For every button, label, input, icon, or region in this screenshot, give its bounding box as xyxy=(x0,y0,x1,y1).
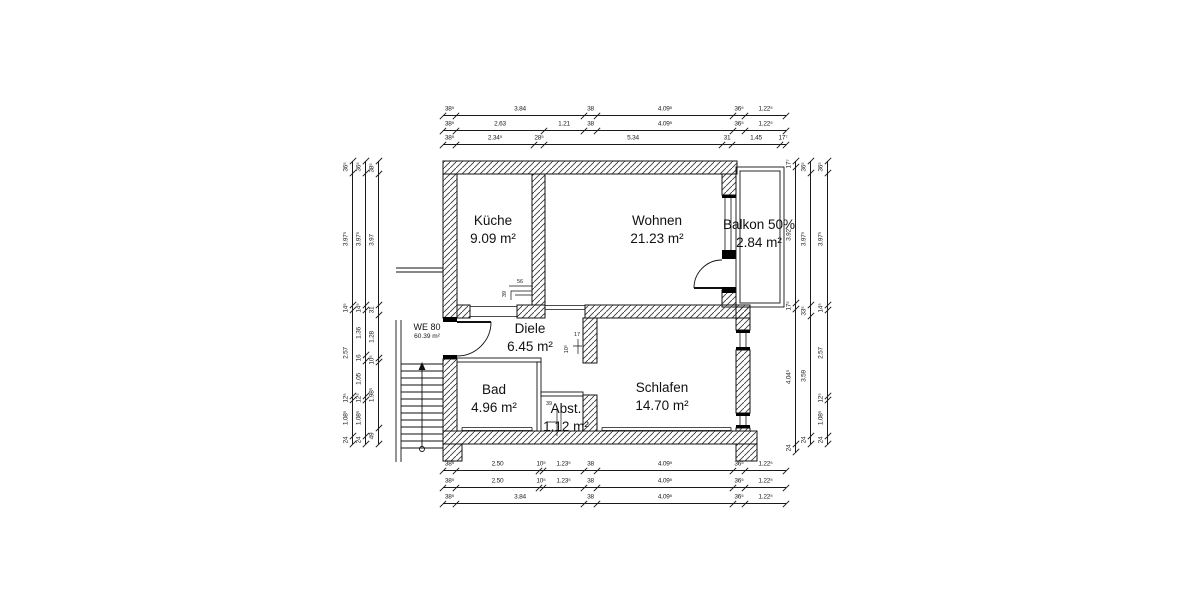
dim-value-top-1-2: 38 xyxy=(587,106,594,113)
dim-value-bottom-3-4: 36⁵ xyxy=(734,494,743,501)
dim-value-bottom-2-4: 38 xyxy=(587,478,594,485)
dim-value-left-inner-6: 49 xyxy=(369,433,376,440)
dim-value-top-2-5: 36⁵ xyxy=(734,121,743,128)
annotation-value-0: 56 xyxy=(517,279,523,285)
dim-value-bottom-1-0: 38⁵ xyxy=(445,461,454,468)
dim-value-top-2-1: 2.63 xyxy=(494,121,506,128)
dim-value-left-outer-0: 36⁵ xyxy=(343,162,350,171)
dim-value-right-mid-1: 3.97⁵ xyxy=(801,232,808,246)
dim-line-top-3 xyxy=(443,144,786,145)
dim-value-left-mid-8: 24 xyxy=(356,437,363,444)
dim-value-bottom-2-7: 1.22⁵ xyxy=(758,478,772,485)
dim-value-right-outer-6: 24 xyxy=(818,437,825,444)
dim-value-top-1-4: 36⁵ xyxy=(734,106,743,113)
annotation-value-1: 39 xyxy=(502,291,508,297)
dim-value-bottom-2-6: 36⁵ xyxy=(734,478,743,485)
dim-value-top-1-1: 3.84 xyxy=(514,106,526,113)
dim-value-bottom-3-1: 3.84 xyxy=(514,494,526,501)
dim-value-left-mid-3: 1.36 xyxy=(356,327,363,339)
dim-value-left-mid-5: 1.05 xyxy=(356,373,363,385)
dim-value-bottom-2-1: 2.50 xyxy=(492,478,504,485)
dim-value-right-outer-3: 2.57 xyxy=(818,347,825,359)
room-name-wohnen: Wohnen xyxy=(630,212,683,230)
dim-value-right-inner-2: 17⁵ xyxy=(786,301,793,310)
room-label-balkon: Balkon 50%2.84 m² xyxy=(723,216,795,252)
room-area-wohnen: 21.23 m² xyxy=(630,230,683,248)
dim-value-right-mid-2: 33⁵ xyxy=(801,306,808,315)
dim-value-bottom-3-5: 1.22⁵ xyxy=(758,494,772,501)
dim-value-bottom-1-1: 2.50 xyxy=(492,461,504,468)
dim-value-left-outer-6: 24 xyxy=(343,437,350,444)
dim-value-right-mid-0: 36⁵ xyxy=(801,162,808,171)
dim-value-right-inner-1: 3.92 xyxy=(786,229,793,241)
dim-value-left-outer-1: 3.97⁵ xyxy=(343,232,350,246)
room-area-bad: 4.96 m² xyxy=(471,399,517,417)
dim-value-left-inner-2: 31 xyxy=(369,307,376,314)
room-name-diele: Diele xyxy=(507,320,553,338)
entry-door xyxy=(457,322,491,356)
dim-value-top-3-6: 17⁷ xyxy=(779,135,788,142)
room-name-balkon: Balkon 50% xyxy=(723,216,795,234)
dim-value-left-outer-3: 2.57 xyxy=(343,347,350,359)
dim-value-right-outer-0: 36⁵ xyxy=(818,162,825,171)
unit-area-label: 60.39 m² xyxy=(414,333,440,340)
dim-value-bottom-3-3: 4.09⁵ xyxy=(658,494,672,501)
dim-value-right-inner-0: 17⁷ xyxy=(786,160,793,169)
dim-value-top-3-0: 38⁵ xyxy=(445,135,454,142)
floorplan-drawing xyxy=(0,0,1200,600)
floorplan-canvas: WE 80 60.39 m² Küche9.09 m²Wohnen21.23 m… xyxy=(0,0,1200,600)
dim-value-left-outer-5: 1.08⁵ xyxy=(343,411,350,425)
dim-value-top-2-0: 38⁵ xyxy=(445,121,454,128)
dim-value-right-inner-3: 4.04⁵ xyxy=(786,369,793,383)
room-label-diele: Diele6.45 m² xyxy=(507,320,553,356)
dim-value-top-2-3: 38 xyxy=(587,121,594,128)
dim-value-bottom-1-5: 4.09⁵ xyxy=(658,461,672,468)
dim-value-top-3-5: 1.45 xyxy=(750,135,762,142)
dim-value-left-mid-6: 12⁵ xyxy=(356,393,363,402)
dim-value-bottom-1-4: 38 xyxy=(587,461,594,468)
dim-value-right-mid-4: 24 xyxy=(801,437,808,444)
dim-value-top-3-3: 5.34 xyxy=(627,135,639,142)
dim-value-bottom-2-0: 38⁵ xyxy=(445,478,454,485)
room-name-kueche: Küche xyxy=(470,212,516,230)
dim-value-right-outer-4: 12⁵ xyxy=(818,393,825,402)
dim-value-left-outer-2: 14⁵ xyxy=(343,303,350,312)
dim-value-bottom-1-3: 1.23⁵ xyxy=(556,461,570,468)
dim-value-bottom-3-2: 38 xyxy=(587,494,594,501)
dim-value-right-outer-1: 3.97⁵ xyxy=(818,232,825,246)
dim-value-right-outer-5: 1.08⁵ xyxy=(818,411,825,425)
dim-value-top-1-3: 4.09⁵ xyxy=(658,106,672,113)
stairs-group xyxy=(396,268,443,462)
room-label-schlafen: Schlafen14.70 m² xyxy=(635,379,688,415)
room-area-abst: 1.12 m² xyxy=(543,418,589,436)
dim-value-top-3-1: 2.34⁵ xyxy=(488,135,502,142)
room-label-kueche: Küche9.09 m² xyxy=(470,212,516,248)
dim-value-left-inner-4: 10⁵ xyxy=(369,355,376,364)
dim-value-right-inner-4: 24 xyxy=(786,445,793,452)
dim-value-bottom-2-3: 1.23⁵ xyxy=(556,478,570,485)
annotation-value-3: 10⁵ xyxy=(564,345,570,353)
dim-value-right-mid-3: 3.59 xyxy=(801,370,808,382)
dim-value-left-inner-3: 1.28 xyxy=(369,331,376,343)
room-area-kueche: 9.09 m² xyxy=(470,230,516,248)
room-area-diele: 6.45 m² xyxy=(507,338,553,356)
dim-value-top-2-4: 4.09⁵ xyxy=(658,121,672,128)
dim-value-left-mid-7: 1.08⁵ xyxy=(356,411,363,425)
dim-value-bottom-1-6: 36⁵ xyxy=(734,461,743,468)
dim-value-left-outer-4: 12⁵ xyxy=(343,393,350,402)
dim-value-bottom-2-2: 10⁵ xyxy=(536,478,545,485)
room-label-bad: Bad4.96 m² xyxy=(471,381,517,417)
dim-value-left-mid-1: 3.97⁵ xyxy=(356,232,363,246)
dim-value-bottom-1-2: 10⁵ xyxy=(536,461,545,468)
dim-value-left-mid-2: 14⁵ xyxy=(356,303,363,312)
annotation-value-2: 17 xyxy=(574,332,580,338)
dim-value-top-3-2: 28⁵ xyxy=(534,135,543,142)
room-area-schlafen: 14.70 m² xyxy=(635,397,688,415)
annotation-value-4: 39 xyxy=(546,401,552,407)
dim-value-left-mid-0: 36⁵ xyxy=(356,162,363,171)
dim-value-top-1-5: 1.22⁵ xyxy=(758,106,772,113)
room-area-balkon: 2.84 m² xyxy=(723,234,795,252)
dim-value-bottom-1-7: 1.22⁵ xyxy=(758,461,772,468)
dim-value-left-inner-1: 3.97 xyxy=(369,234,376,246)
room-label-wohnen: Wohnen21.23 m² xyxy=(630,212,683,248)
stairs-direction-line xyxy=(419,362,426,452)
dim-value-top-2-2: 1.21 xyxy=(558,121,570,128)
balcony-door xyxy=(694,260,722,288)
unit-label-we80: WE 80 xyxy=(413,322,440,332)
dim-value-right-outer-2: 14⁵ xyxy=(818,303,825,312)
dim-value-top-3-4: 31 xyxy=(724,135,731,142)
room-name-schlafen: Schlafen xyxy=(635,379,688,397)
dim-value-bottom-3-0: 38⁵ xyxy=(445,494,454,501)
dim-value-left-mid-4: 16 xyxy=(356,355,363,362)
room-name-bad: Bad xyxy=(471,381,517,399)
dim-value-left-inner-5: 1.98⁵ xyxy=(369,388,376,402)
dim-value-left-inner-0: 38⁵ xyxy=(369,163,376,172)
dim-value-top-2-6: 1.22⁵ xyxy=(758,121,772,128)
dim-value-bottom-2-5: 4.09⁵ xyxy=(658,478,672,485)
dim-value-top-1-0: 38⁵ xyxy=(445,106,454,113)
